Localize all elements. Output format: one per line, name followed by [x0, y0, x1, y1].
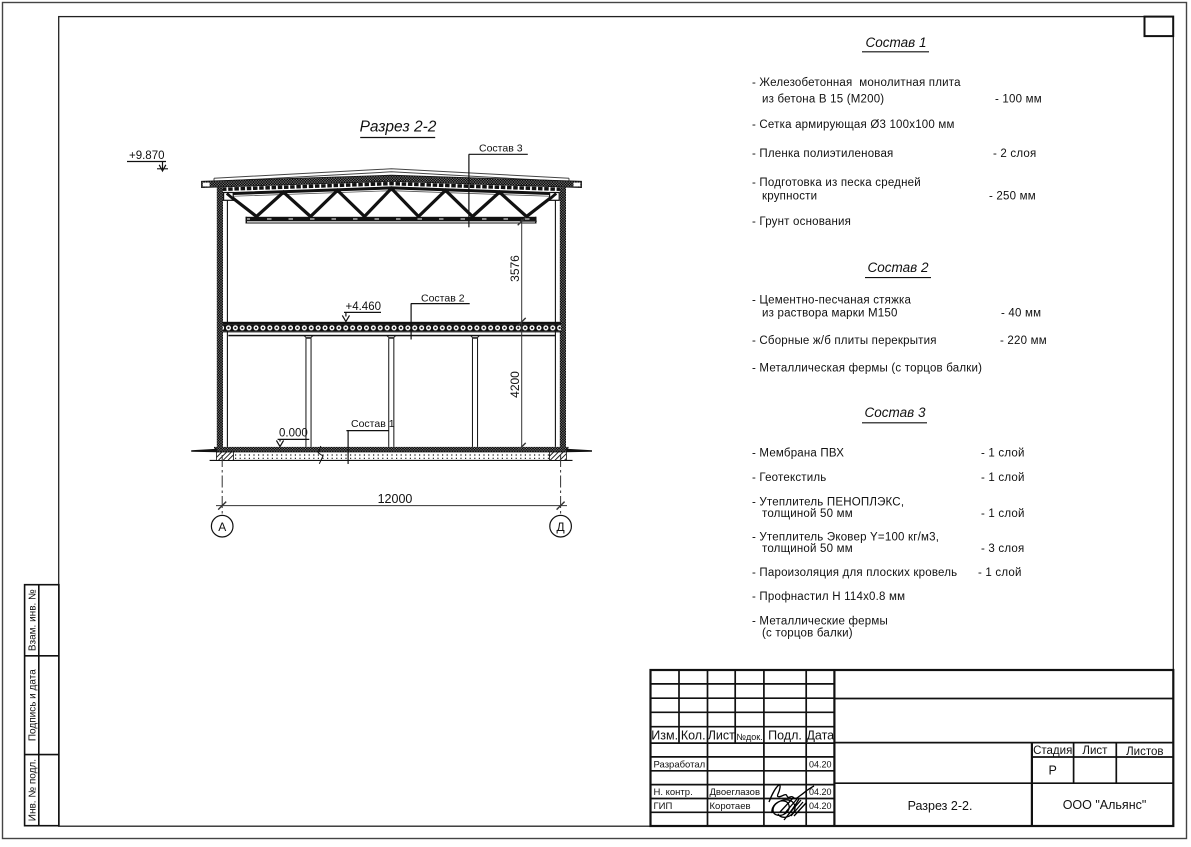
- svg-text:0.000: 0.000: [279, 428, 308, 440]
- svg-text:04.20: 04.20: [809, 801, 832, 811]
- svg-text:Взам. инв. №: Взам. инв. №: [28, 589, 39, 651]
- svg-text:Состав 3: Состав 3: [865, 405, 926, 420]
- svg-text:- Металлическая фермы (с торцо: - Металлическая фермы (с торцов балки): [752, 363, 982, 375]
- svg-text:Лист: Лист: [1082, 745, 1108, 757]
- svg-text:из бетона В 15 (М200): из бетона В 15 (М200): [762, 94, 884, 106]
- svg-text:- Металлические фермы: - Металлические фермы: [752, 616, 888, 628]
- svg-text:ООО "Альянс": ООО "Альянс": [1063, 798, 1147, 812]
- svg-text:Д: Д: [557, 520, 565, 534]
- svg-text:- Железобетонная монолитная п: - Железобетонная монолитная плита: [752, 77, 961, 89]
- svg-text:Н. контр.: Н. контр.: [654, 787, 693, 798]
- svg-text:(с торцов балки): (с торцов балки): [762, 628, 853, 640]
- svg-text:толщиной 50 мм: толщиной 50 мм: [762, 508, 853, 520]
- svg-text:- Пленка полиэтиленовая: - Пленка полиэтиленовая: [752, 148, 894, 160]
- svg-text:Разрез 2-2: Разрез 2-2: [360, 119, 437, 136]
- svg-text:Листов: Листов: [1126, 746, 1163, 758]
- svg-text:Состав 2: Состав 2: [868, 260, 929, 275]
- svg-text:Подл.: Подл.: [768, 729, 802, 743]
- svg-text:- Грунт основания: - Грунт основания: [752, 216, 851, 228]
- svg-text:Лист: Лист: [708, 729, 735, 743]
- svg-text:- Мембрана ПВХ: - Мембрана ПВХ: [752, 448, 844, 460]
- svg-text:- 220 мм: - 220 мм: [1000, 335, 1047, 347]
- svg-text:Разрез 2-2.: Разрез 2-2.: [908, 799, 973, 813]
- svg-text:3576: 3576: [508, 255, 522, 282]
- svg-text:- Сборные ж/б плиты перекрытия: - Сборные ж/б плиты перекрытия: [752, 335, 937, 347]
- svg-text:- Профнастил Н 114х0.8 мм: - Профнастил Н 114х0.8 мм: [752, 591, 905, 603]
- svg-text:из раствора марки М150: из раствора марки М150: [762, 308, 898, 320]
- svg-text:+9.870: +9.870: [129, 150, 165, 162]
- svg-text:А: А: [218, 520, 226, 534]
- svg-text:- Геотекстиль: - Геотекстиль: [752, 472, 826, 484]
- svg-text:- Утеплитель ПЕНОПЛЭКС,: - Утеплитель ПЕНОПЛЭКС,: [752, 497, 904, 509]
- svg-text:+4.460: +4.460: [346, 301, 382, 313]
- svg-text:Разработал: Разработал: [654, 759, 706, 770]
- svg-text:Двоеглазов: Двоеглазов: [710, 787, 761, 798]
- svg-text:Состав 1: Состав 1: [866, 35, 927, 50]
- svg-text:12000: 12000: [378, 492, 413, 506]
- svg-text:- Сетка армирующая Ø3 100х100: - Сетка армирующая Ø3 100х100 мм: [752, 119, 955, 131]
- svg-text:04.20: 04.20: [809, 787, 832, 797]
- svg-text:Коротаев: Коротаев: [710, 801, 751, 812]
- svg-text:Инв. № подл.: Инв. № подл.: [28, 759, 39, 821]
- svg-text:толщиной 50 мм: толщиной 50 мм: [762, 543, 853, 555]
- svg-text:- 250 мм: - 250 мм: [989, 191, 1036, 203]
- svg-text:- 1 слой: - 1 слой: [981, 448, 1025, 460]
- svg-text:- 3 слоя: - 3 слоя: [981, 543, 1024, 555]
- svg-text:Изм.: Изм.: [651, 729, 678, 743]
- svg-text:Подпись и дата: Подпись и дата: [28, 669, 39, 741]
- svg-text:- 1 слой: - 1 слой: [981, 508, 1025, 520]
- svg-text:- Утеплитель Эковер Y=100 кг/м: - Утеплитель Эковер Y=100 кг/м3,: [752, 532, 939, 544]
- svg-text:Состав 1: Состав 1: [351, 418, 395, 430]
- svg-text:- 1 слой: - 1 слой: [978, 567, 1022, 579]
- svg-text:Состав 2: Состав 2: [421, 293, 465, 305]
- svg-text:Дата: Дата: [806, 729, 834, 743]
- svg-text:- Пароизоляция для плоских кро: - Пароизоляция для плоских кровель: [752, 567, 957, 579]
- svg-text:Состав 3: Состав 3: [479, 143, 523, 155]
- svg-text:Стадия: Стадия: [1033, 745, 1072, 757]
- svg-text:- 100 мм: - 100 мм: [995, 94, 1042, 106]
- svg-text:крупности: крупности: [762, 191, 817, 203]
- svg-text:№док.: №док.: [736, 732, 762, 742]
- svg-text:Р: Р: [1049, 764, 1057, 778]
- svg-text:4200: 4200: [508, 371, 522, 398]
- svg-text:- Цементно-песчаная стяжка: - Цементно-песчаная стяжка: [752, 295, 911, 307]
- svg-text:ГИП: ГИП: [654, 801, 673, 812]
- svg-text:- 1 слой: - 1 слой: [981, 472, 1025, 484]
- svg-text:- Подготовка из песка средней: - Подготовка из песка средней: [752, 177, 921, 189]
- svg-text:04.20: 04.20: [809, 759, 832, 769]
- svg-text:- 40 мм: - 40 мм: [1001, 308, 1041, 320]
- svg-text:Кол.: Кол.: [681, 729, 706, 743]
- svg-text:- 2 слоя: - 2 слоя: [993, 148, 1036, 160]
